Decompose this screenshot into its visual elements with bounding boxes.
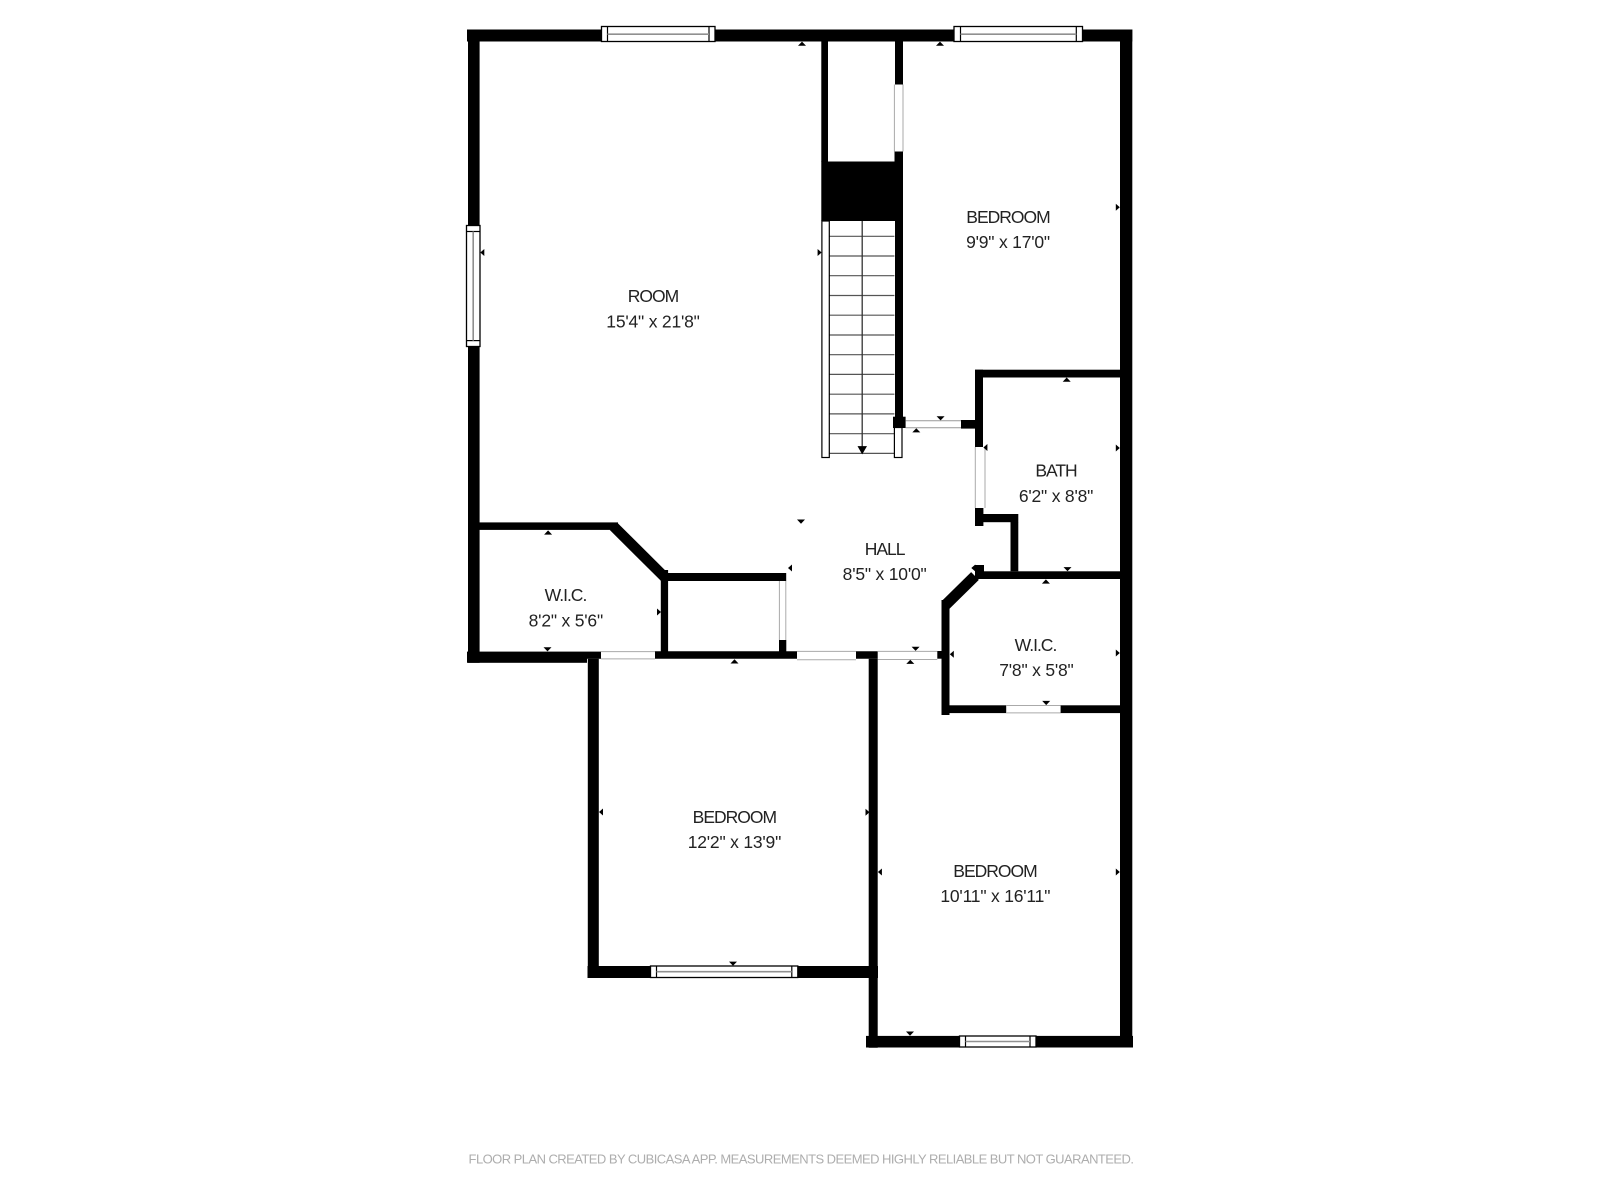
svg-text:BATH: BATH (1035, 461, 1077, 481)
svg-text:BEDROOM: BEDROOM (953, 861, 1037, 881)
svg-text:ROOM: ROOM (628, 286, 679, 306)
svg-text:8'2" x 5'6": 8'2" x 5'6" (529, 611, 603, 631)
svg-text:HALL: HALL (865, 539, 906, 559)
svg-text:7'8" x 5'8": 7'8" x 5'8" (999, 660, 1073, 680)
svg-text:BEDROOM: BEDROOM (966, 207, 1050, 227)
svg-text:15'4" x 21'8": 15'4" x 21'8" (606, 312, 699, 332)
svg-text:W.I.C.: W.I.C. (1015, 635, 1057, 655)
svg-text:6'2" x 8'8": 6'2" x 8'8" (1019, 486, 1093, 506)
svg-text:W.I.C.: W.I.C. (545, 585, 587, 605)
svg-text:BEDROOM: BEDROOM (693, 807, 777, 827)
svg-text:9'9" x 17'0": 9'9" x 17'0" (966, 232, 1050, 252)
svg-text:10'11" x 16'11": 10'11" x 16'11" (940, 886, 1050, 906)
svg-text:12'2" x 13'9": 12'2" x 13'9" (688, 832, 781, 852)
svg-text:8'5" x 10'0": 8'5" x 10'0" (843, 564, 927, 584)
svg-text:FLOOR PLAN CREATED BY CUBICASA: FLOOR PLAN CREATED BY CUBICASA APP. MEAS… (469, 1152, 1134, 1167)
